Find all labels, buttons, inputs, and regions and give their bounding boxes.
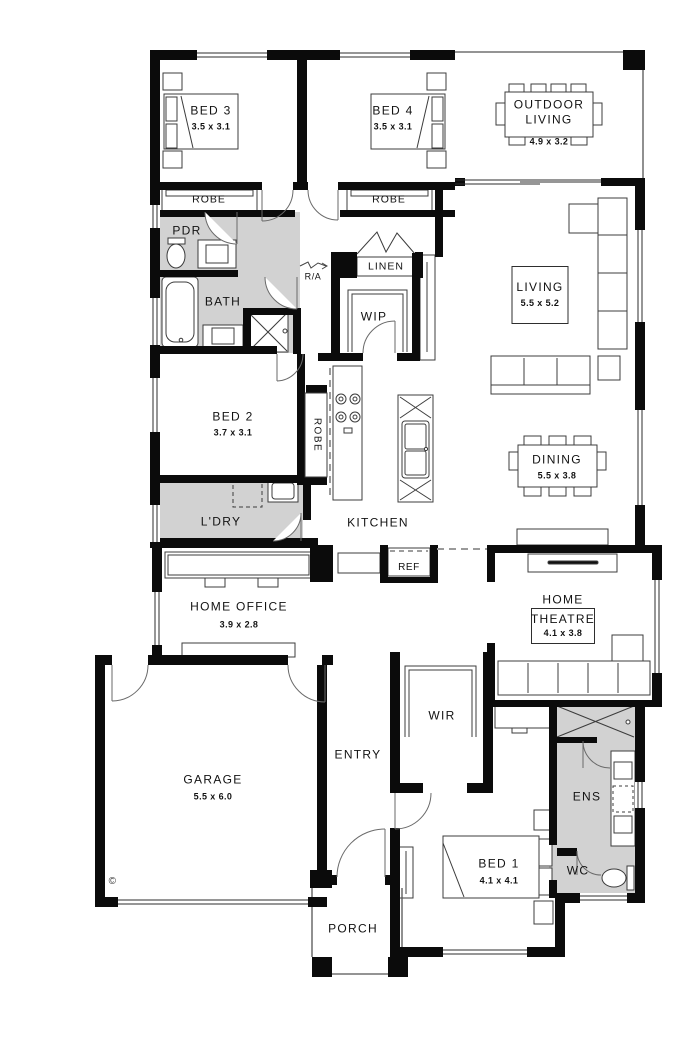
room-dims-home-theatre: 4.1 x 3.8 bbox=[544, 628, 583, 639]
laundry-sink bbox=[268, 480, 298, 502]
room-label-wip: WIP bbox=[361, 310, 388, 325]
room-label-ref: REF bbox=[398, 562, 420, 575]
office-cabinet bbox=[182, 643, 295, 657]
bed1-dresser bbox=[495, 706, 553, 733]
room-label-robe-bed3: ROBE bbox=[192, 193, 226, 206]
bath-vanity bbox=[203, 325, 243, 347]
room-label-outdoor-living-1: OUTDOOR bbox=[514, 98, 584, 113]
office-desk bbox=[165, 552, 312, 587]
room-dims-bed3: 3.5 x 3.1 bbox=[192, 121, 231, 132]
room-label-garage: GARAGE bbox=[183, 773, 242, 788]
room-label-robe-bed2: ROBE bbox=[310, 418, 323, 452]
room-label-outdoor-living-2: LIVING bbox=[525, 113, 572, 128]
room-label-kitchen: KITCHEN bbox=[347, 516, 409, 531]
room-label-linen: LINEN bbox=[368, 260, 404, 273]
bed1-wardrobe bbox=[399, 847, 413, 898]
room-label-bed3: BED 3 bbox=[190, 104, 231, 119]
room-label-entry: ENTRY bbox=[335, 748, 382, 763]
room-dims-bed1: 4.1 x 4.1 bbox=[480, 875, 519, 886]
room-label-dining: DINING bbox=[532, 453, 582, 468]
room-dims-home-office: 3.9 x 2.8 bbox=[220, 619, 259, 630]
room-label-robe-bed4: ROBE bbox=[372, 193, 406, 206]
room-label-home-theatre-2: THEATRE bbox=[531, 612, 595, 627]
kitchen-cabinet bbox=[338, 553, 380, 573]
tv-unit bbox=[528, 554, 617, 572]
bathtub-icon bbox=[162, 277, 198, 347]
room-dims-dining: 5.5 x 3.8 bbox=[538, 470, 577, 481]
room-dims-bed2: 3.7 x 3.1 bbox=[214, 427, 253, 438]
toilet-icon bbox=[167, 238, 185, 268]
room-label-bed4: BED 4 bbox=[372, 104, 413, 119]
room-labelbox-living: LIVING 5.5 x 5.2 bbox=[512, 266, 569, 324]
room-label-home-office: HOME OFFICE bbox=[190, 600, 288, 615]
room-label-pdr: PDR bbox=[172, 224, 201, 239]
room-label-wc: WC bbox=[567, 864, 590, 879]
copyright-watermark: © bbox=[109, 876, 118, 889]
room-label-wir: WIR bbox=[428, 709, 455, 724]
kitchen-bench bbox=[333, 366, 362, 500]
living-sectional bbox=[569, 198, 627, 349]
room-label-bed2: BED 2 bbox=[212, 410, 253, 425]
room-dims-garage: 5.5 x 6.0 bbox=[194, 791, 233, 802]
room-label-bed1: BED 1 bbox=[478, 857, 519, 872]
room-label-ens: ENS bbox=[573, 790, 602, 805]
room-label-return-air: R/A bbox=[305, 271, 322, 282]
room-dims-outdoor-living: 4.9 x 3.2 bbox=[530, 136, 569, 147]
room-dims-bed4: 3.5 x 3.1 bbox=[374, 121, 413, 132]
dining-buffet bbox=[517, 529, 608, 545]
room-label-bath: BATH bbox=[205, 295, 241, 310]
room-label-porch: PORCH bbox=[328, 922, 378, 937]
floor-plan: BED 3 3.5 x 3.1 BED 4 3.5 x 3.1 OUTDOOR … bbox=[0, 0, 700, 1045]
ens-vanity bbox=[611, 751, 635, 846]
wir-shelves bbox=[405, 666, 476, 737]
living-armchair bbox=[598, 356, 620, 380]
room-dims-living: 5.5 x 5.2 bbox=[521, 298, 560, 309]
pdr-vanity bbox=[198, 240, 236, 268]
return-air-icon bbox=[300, 262, 327, 269]
room-labelbox-home-theatre: THEATRE 4.1 x 3.8 bbox=[531, 608, 595, 644]
room-label-ldry: L'DRY bbox=[201, 515, 242, 530]
living-sofa bbox=[491, 356, 590, 394]
room-label-home-theatre-1: HOME bbox=[542, 593, 583, 608]
room-label-living: LIVING bbox=[516, 280, 563, 295]
theatre-sofa bbox=[498, 635, 650, 695]
island-bench bbox=[398, 395, 433, 502]
